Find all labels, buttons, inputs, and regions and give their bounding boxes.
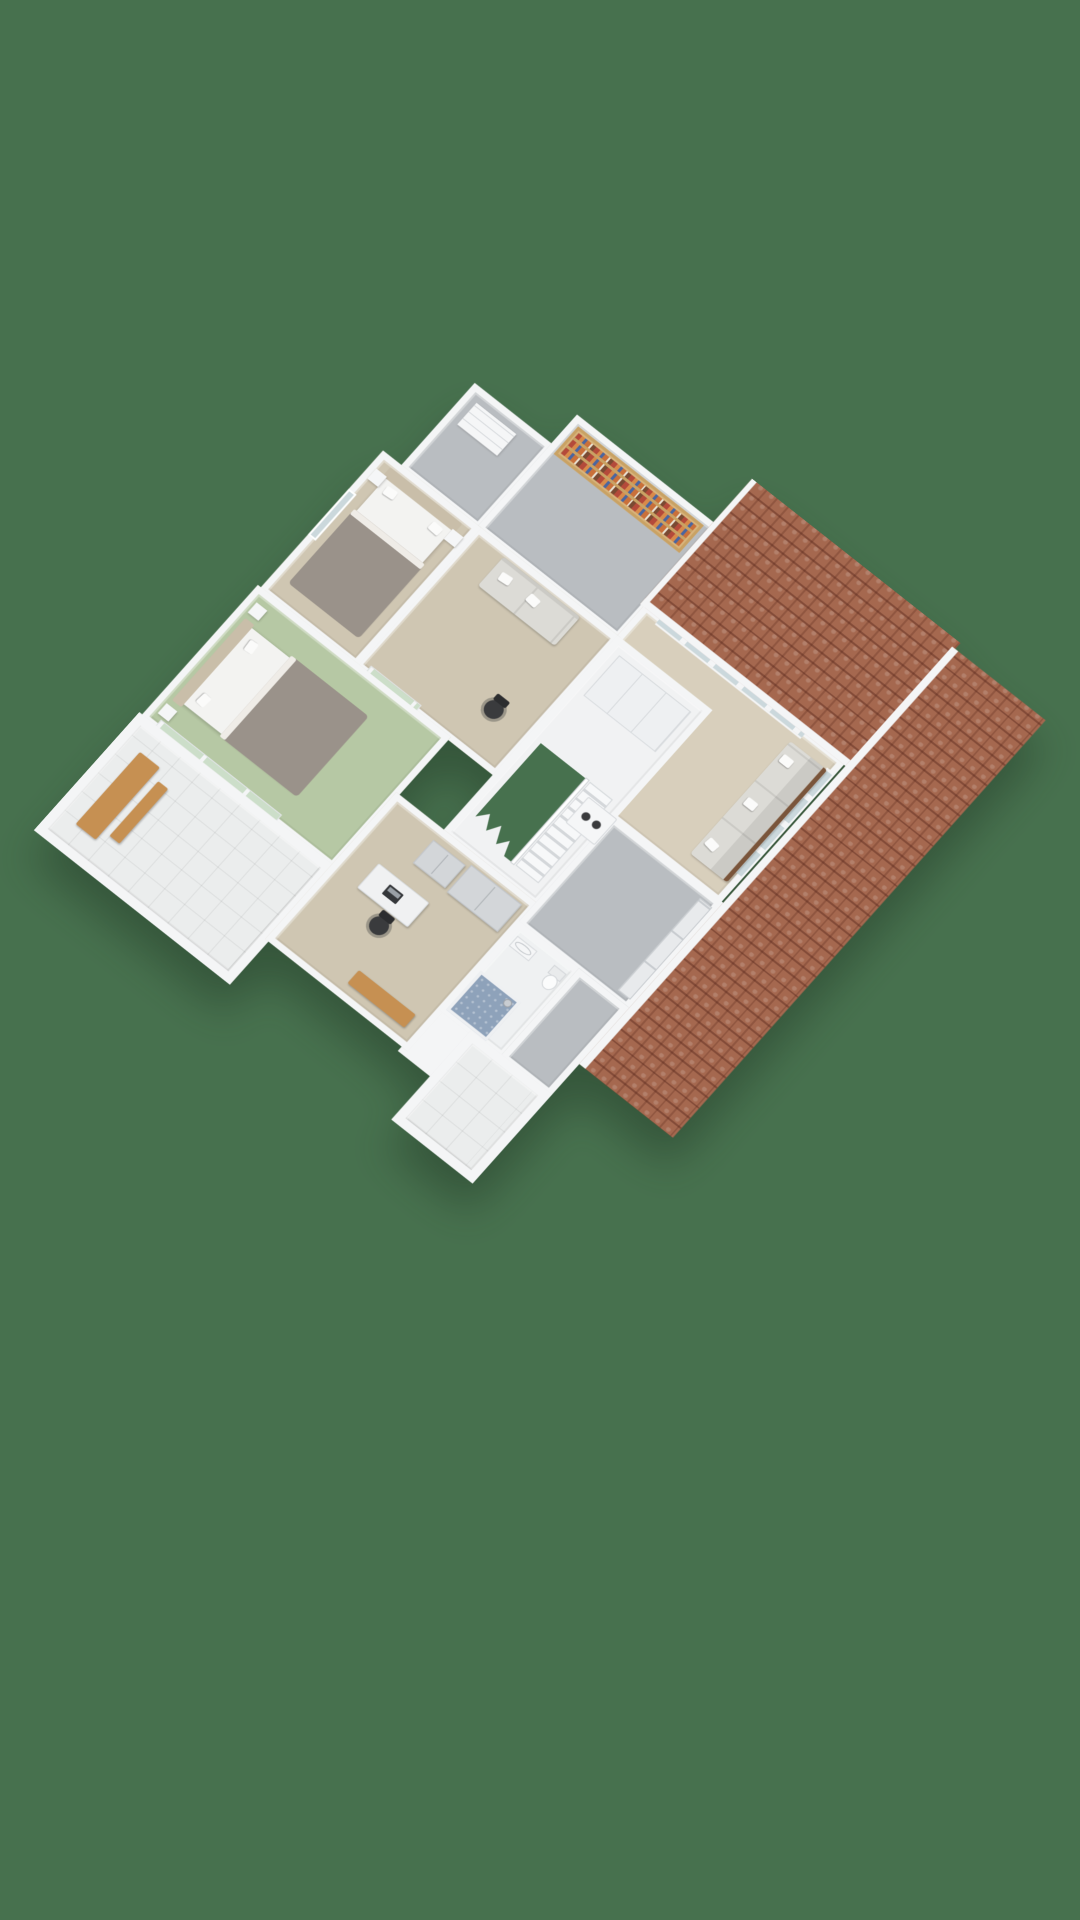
sofa-pillow — [704, 837, 720, 852]
office-chair — [475, 692, 512, 726]
bed-pillow — [195, 693, 211, 708]
sofa-pillow — [497, 572, 513, 587]
wood-bench — [347, 970, 415, 1028]
laptop — [382, 884, 404, 904]
sofa-pillow — [778, 754, 794, 769]
nightstand — [158, 703, 178, 722]
floorplan-render-canvas — [0, 0, 1080, 1920]
sofa-pillow — [742, 797, 758, 812]
bookshelf — [554, 426, 704, 552]
nightstand — [248, 602, 268, 621]
bed-pillow — [427, 521, 443, 536]
bed-pillow — [244, 639, 260, 654]
bed-pillow — [382, 485, 398, 500]
dresser — [457, 403, 516, 456]
sink — [509, 936, 538, 962]
headboard — [172, 618, 254, 707]
duvet — [219, 655, 369, 797]
sofa-pillow — [525, 593, 541, 608]
floorplan-isometric-scene — [47, 346, 913, 1174]
